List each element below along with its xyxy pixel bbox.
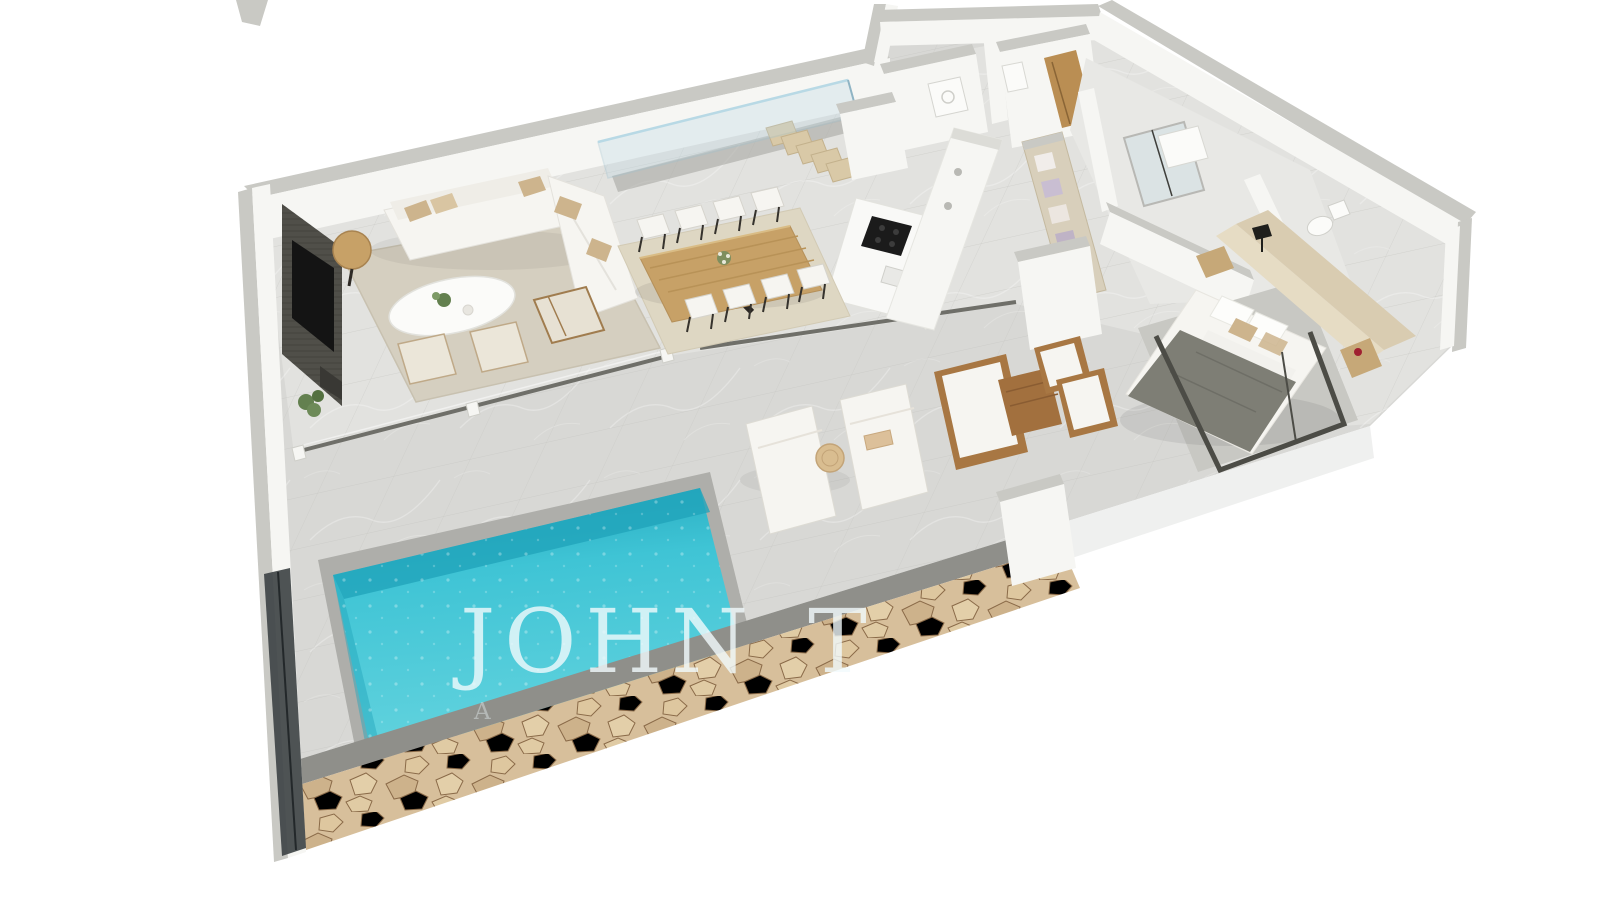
burner <box>893 229 899 235</box>
floor-plan-render: JOHN T A <box>0 0 1600 900</box>
door-post-1 <box>292 445 306 461</box>
table-dish <box>463 305 473 315</box>
centerpiece-flowers <box>722 260 726 264</box>
floor-plant <box>307 403 321 417</box>
centerpiece-flowers <box>718 252 722 256</box>
floor-plant <box>312 390 324 402</box>
centerpiece-flowers <box>726 254 730 258</box>
side-table <box>333 231 371 269</box>
burner <box>875 237 881 243</box>
flower-red <box>1354 348 1362 356</box>
woven-pouf <box>816 444 844 472</box>
counter-item <box>954 168 962 176</box>
burner <box>889 241 895 247</box>
burner <box>879 225 885 231</box>
hall-wall-face <box>840 102 908 180</box>
door-post-2 <box>466 401 480 417</box>
table-plant <box>432 292 440 300</box>
roof-corner-fragment <box>236 0 268 26</box>
counter-item <box>944 202 952 210</box>
corridor-wall-stub-face <box>1018 246 1102 350</box>
plan-svg <box>0 0 1600 900</box>
terrace-wall-stub-face <box>1000 484 1076 586</box>
